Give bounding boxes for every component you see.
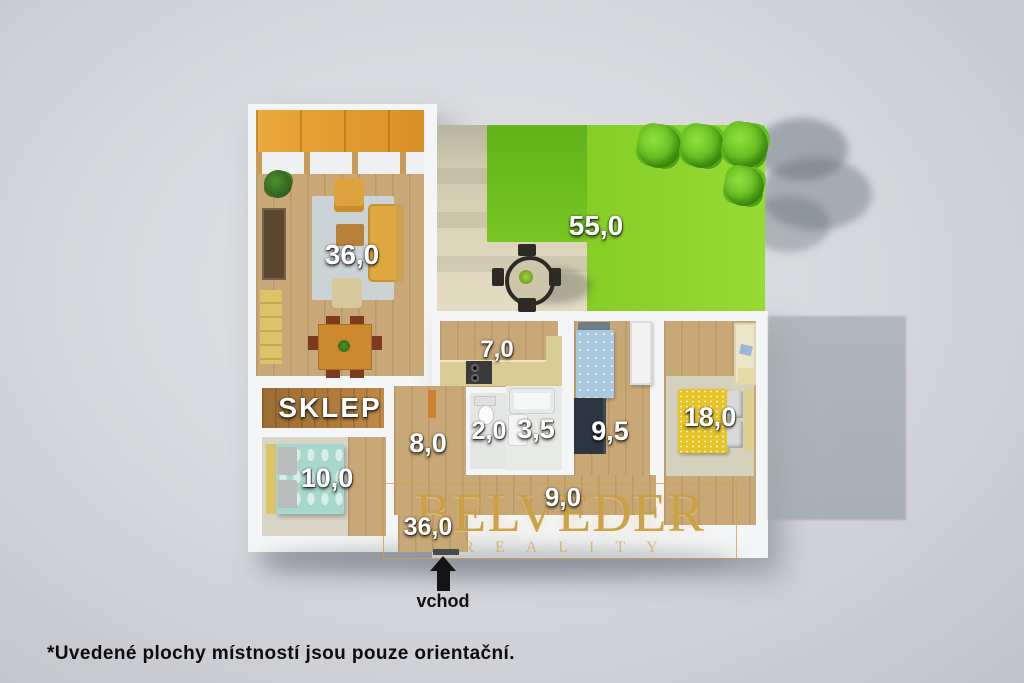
- tree: [722, 122, 768, 168]
- bathtub: [509, 388, 555, 414]
- area-label-kitchen: 7,0: [470, 336, 524, 364]
- tree: [724, 166, 764, 206]
- floor-plan-render: 36,0 55,0 7,0 SKLEP 10,0 8,0 2,0 3,5 9,5…: [0, 0, 1024, 683]
- area-label-entry: 36,0: [397, 513, 459, 542]
- patio-chair: [492, 268, 504, 286]
- area-label-garden: 55,0: [564, 210, 628, 242]
- wardrobe-white: [630, 321, 652, 385]
- kitchen-counter: [546, 336, 562, 386]
- area-label-hall-small: 8,0: [402, 428, 454, 459]
- patio-table-plant: [519, 270, 533, 284]
- bed-headboard: [744, 389, 754, 451]
- patio-chair: [518, 298, 536, 312]
- table-plant: [338, 340, 350, 352]
- armchair: [332, 278, 362, 308]
- vanity-item: [739, 344, 753, 356]
- area-label-wc: 2,0: [466, 417, 512, 446]
- nightstand: [738, 368, 754, 384]
- area-label-hallway: 9,0: [537, 482, 589, 513]
- area-label-living-room: 36,0: [312, 239, 392, 271]
- building-shadow: [768, 316, 906, 520]
- tv-cabinet: [262, 208, 286, 280]
- cooktop-burner: [471, 364, 479, 372]
- area-label-bedroom-right: 18,0: [678, 402, 742, 433]
- entrance-arrow-icon: [430, 556, 456, 571]
- bookshelf: [260, 290, 282, 364]
- patio-chair: [549, 268, 561, 286]
- room-label-cellar: SKLEP: [278, 392, 382, 424]
- patio-chair: [518, 244, 536, 256]
- open-door: [428, 390, 436, 418]
- area-label-bedroom-middle: 9,5: [584, 416, 636, 447]
- living-room-wall-top: [256, 110, 424, 152]
- plant: [264, 170, 292, 198]
- armchair: [334, 178, 364, 212]
- tree: [637, 124, 681, 168]
- bed-single-blue: [576, 330, 614, 398]
- bed-headboard: [266, 444, 276, 514]
- entrance-arrow-shaft: [437, 570, 450, 591]
- cooktop: [466, 361, 492, 384]
- area-label-bathroom: 3,5: [510, 414, 562, 445]
- tree: [680, 124, 724, 168]
- footnote-disclaimer: *Uvedené plochy místností jsou pouze ori…: [47, 643, 515, 665]
- cooktop-burner: [471, 374, 479, 382]
- entrance-label: vchod: [402, 591, 484, 612]
- area-label-bedroom-left: 10,0: [293, 463, 361, 494]
